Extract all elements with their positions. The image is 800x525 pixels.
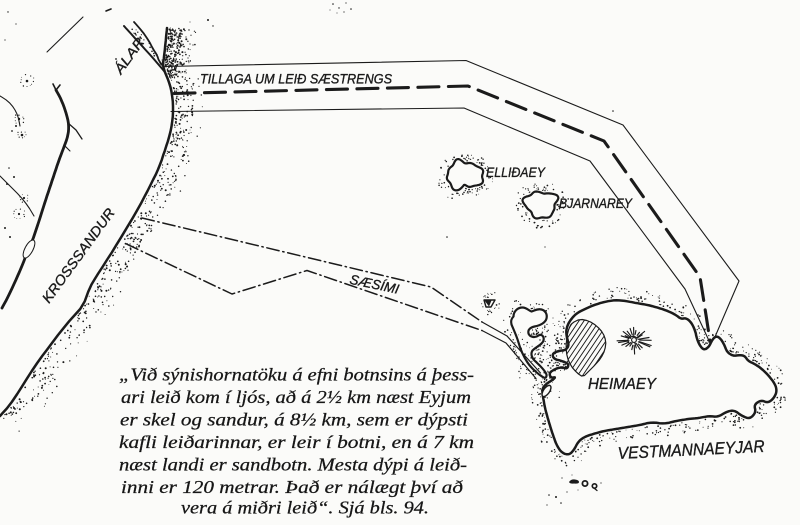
svg-text:vera á miðri leið“. Sjá bls. 9: vera á miðri leið“. Sjá bls. 94. [181,498,429,518]
svg-text:ari leið kom í ljós, að á 2½ k: ari leið kom í ljós, að á 2½ km næst Eyj… [121,387,471,407]
svg-text:TILLAGA UM LEIÐ SÆSTRENGS: TILLAGA UM LEIÐ SÆSTRENGS [200,72,392,87]
svg-text:ELLIÐAEY: ELLIÐAEY [486,165,546,180]
svg-text:inni er 120 metrar. Það er nál: inni er 120 metrar. Það er nálægt því að [121,477,463,497]
svg-text:„Við sýnishornatöku á efni bot: „Við sýnishornatöku á efni botnsins á þe… [119,365,474,385]
svg-text:BJARNAREY: BJARNAREY [559,196,633,211]
svg-text:er skel og sandur, á 8½ km, se: er skel og sandur, á 8½ km, sem er dýpst… [120,410,468,430]
svg-text:HEIMAEY: HEIMAEY [588,376,658,393]
svg-text:næst landi er sandbotn. Mesta: næst landi er sandbotn. Mesta dýpi á lei… [119,455,467,475]
svg-text:kafli leiðarinnar, er leir í b: kafli leiðarinnar, er leir í botni, en á… [119,432,474,452]
